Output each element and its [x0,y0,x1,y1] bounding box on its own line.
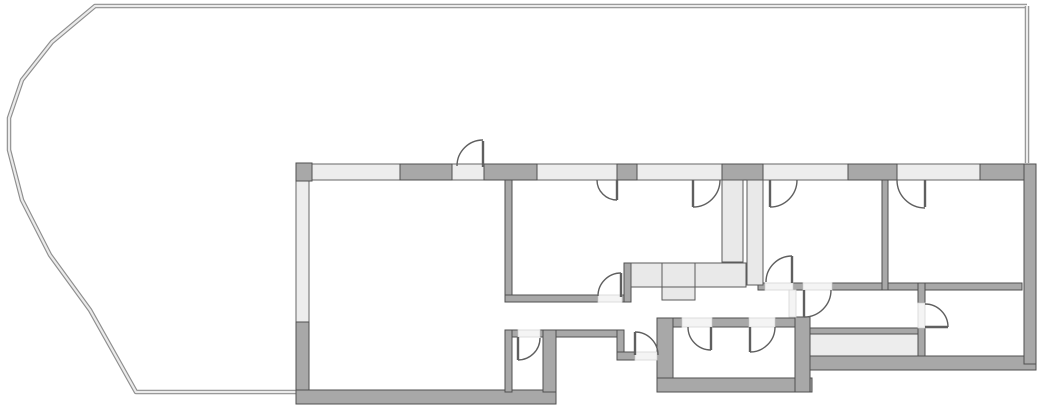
door-threshold [803,283,832,290]
wall [400,164,452,180]
terrace-door-living-swing-arc [457,140,483,166]
wall [712,318,749,327]
kitchen-counter [695,263,746,287]
kitchen-counter [662,263,695,287]
wall [793,283,803,290]
wall [505,180,512,302]
wall [296,390,556,404]
hall-door-swing-arc [804,290,831,317]
door-threshold [635,352,657,360]
window [897,164,980,180]
wall [848,164,897,180]
window [537,164,617,180]
terrace-door-room-2-swing-arc [770,180,797,207]
wall [505,295,598,302]
wall [657,378,812,392]
wall [722,164,763,180]
wall [795,317,810,392]
wall [810,356,1036,370]
wall [624,263,631,302]
window [637,164,722,180]
wall [918,328,925,356]
wall [882,180,888,290]
wall [617,352,635,360]
window [310,164,400,180]
wall [484,164,537,180]
door-threshold [682,318,712,327]
wall [617,164,637,180]
floor-plan [0,0,1042,416]
bath-door-left-swing-arc [688,327,711,350]
door-threshold [789,290,796,317]
door-threshold [518,330,540,337]
wall [775,318,795,327]
door-threshold [749,318,775,327]
shaft [722,180,743,262]
kitchen-counter [662,287,695,300]
wall [1024,164,1036,364]
window [452,164,484,180]
room-2-hall-door-swing-arc [766,256,792,282]
window [763,164,848,180]
terrace-door-kitchen-swing-arc [693,180,720,207]
wall [543,330,556,392]
room-4-door-swing-arc [925,304,948,327]
wall [832,283,1022,290]
wall [918,283,925,303]
kitchen-counter [631,263,662,287]
door-threshold [918,303,925,328]
terrace-door-room-1-swing-arc [597,180,617,200]
door-threshold [765,283,793,290]
floor-plan-canvas [0,0,1042,416]
window [296,180,309,322]
door-threshold [598,295,622,302]
terrace-door-room-3-swing-arc [897,180,925,208]
room-1-hall-door-swing-arc [598,273,621,296]
entry-door-swing-arc [635,332,658,355]
wall [505,330,512,392]
wc-door-swing-arc [518,338,540,360]
wall [296,163,312,181]
bath-door-right-swing-arc [750,327,775,352]
wall [810,328,918,334]
shaft [747,180,763,285]
window [810,334,918,356]
wall [556,330,624,337]
